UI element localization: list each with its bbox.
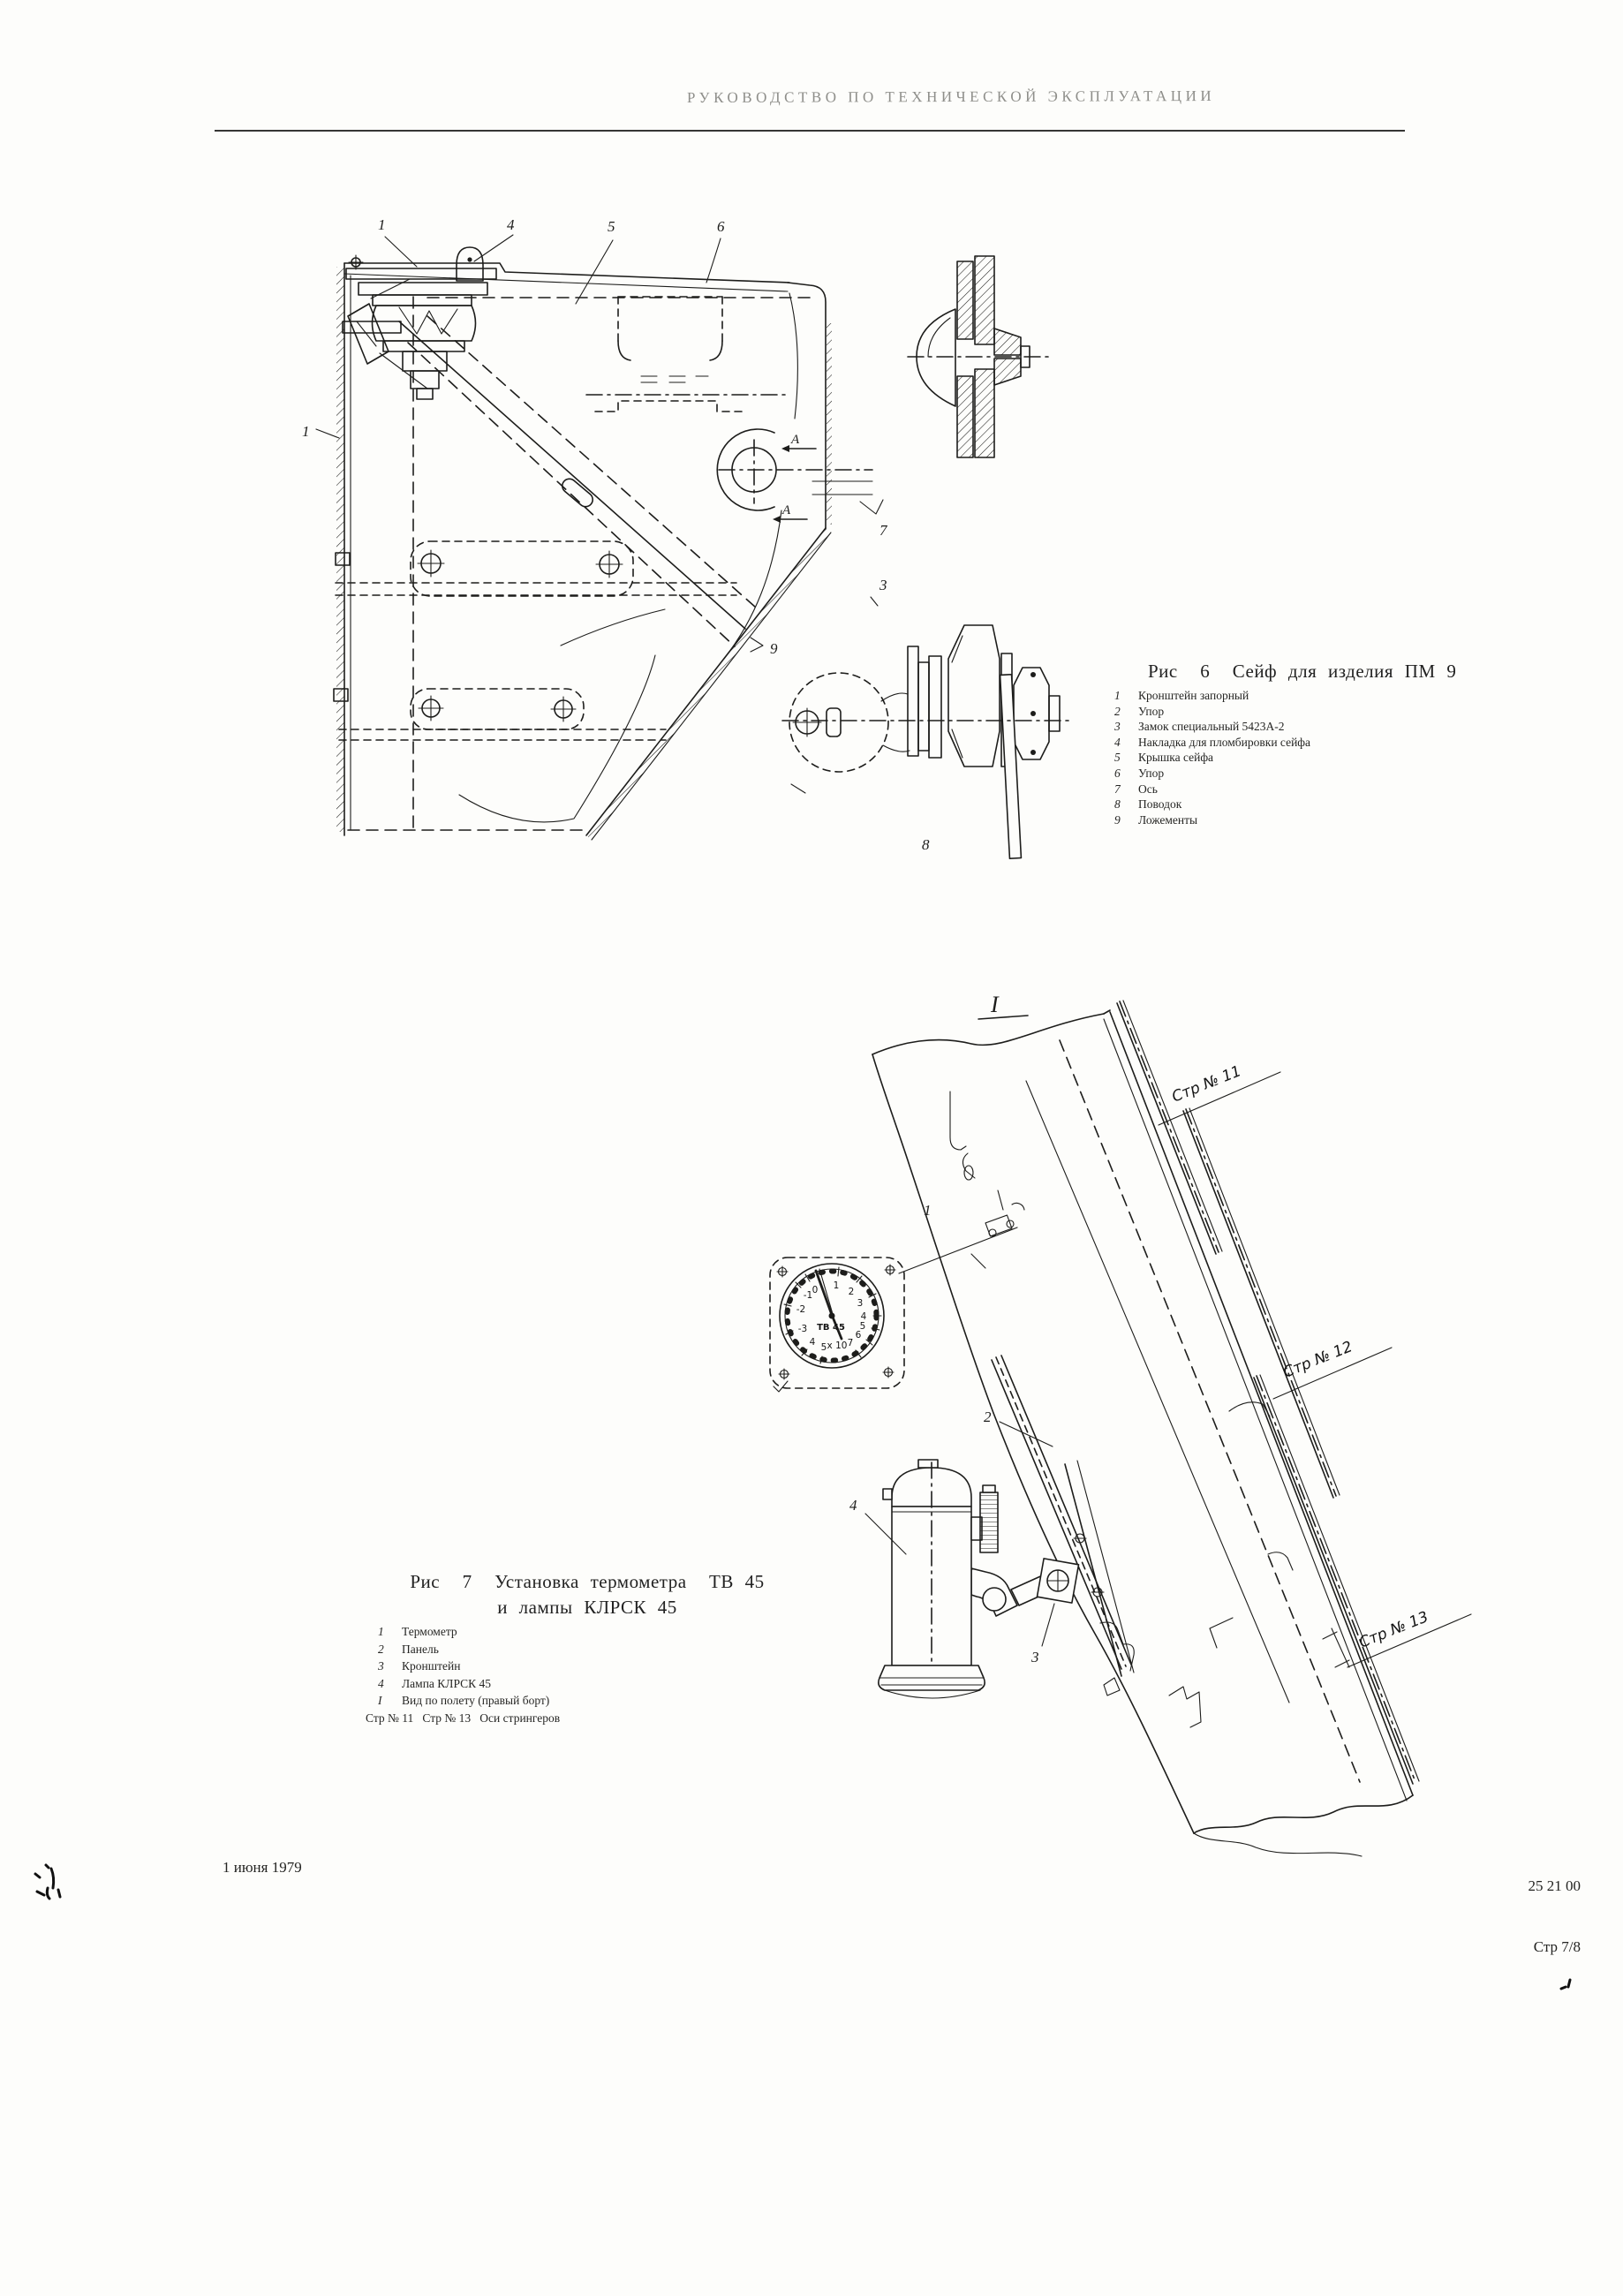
dial-number: 2 — [849, 1287, 855, 1297]
stringer-11 — [1117, 1001, 1222, 1254]
footer-date: 1 июня 1979 — [223, 1859, 302, 1877]
dial-number: -3 — [798, 1324, 807, 1334]
list-item: 5Крышка сейфа — [1114, 750, 1310, 766]
list-item: 1Кронштейн запорный — [1114, 688, 1310, 704]
lock-assembly — [343, 247, 496, 399]
page-header-stamp: РУКОВОДСТВО ПО ТЕХНИЧЕСКОЙ ЭКСПЛУАТАЦИИ — [687, 87, 1215, 107]
list-item: 3Замок специальный 5423А-2 — [1114, 719, 1310, 735]
dial-number: 7 — [848, 1338, 854, 1348]
list-item: 3Кронштейн — [378, 1658, 560, 1675]
thermometer-mount — [950, 1091, 1024, 1268]
section-letter-A: А — [790, 433, 800, 447]
callout-4: 4 — [507, 216, 515, 233]
header-rule — [215, 130, 1405, 132]
callout-1b: 1 — [302, 423, 310, 440]
ink-scribble — [25, 1854, 87, 1916]
dial-number: -2 — [796, 1304, 805, 1315]
list-item: 2Упор — [1114, 704, 1310, 720]
seal-plate — [457, 247, 483, 281]
fig6-parts-list: 1Кронштейн запорный 2Упор 3Замок специал… — [1114, 688, 1310, 827]
gauge-multiplier: x 10 — [827, 1341, 848, 1351]
panel-right-edge — [788, 283, 826, 528]
list-item: 4Накладка для пломбировки сейфа — [1114, 735, 1310, 751]
dial-number: 6 — [856, 1330, 862, 1341]
fig7-title-line2: и лампы КЛРСК 45 — [380, 1597, 795, 1619]
skin-top-edge — [872, 1014, 1104, 1054]
footer-page-number: Стр 7/8 — [1439, 1937, 1581, 1957]
stringer-12 — [1183, 1108, 1340, 1498]
list-item: 7Ось — [1114, 782, 1310, 797]
skin-bottom-edge — [1194, 1795, 1413, 1833]
footer-right: 25 21 00 Стр 7/8 — [1439, 1835, 1581, 1998]
callout-7: 7 — [879, 522, 888, 539]
fig7-lamp-assembly: 4 3 — [830, 1455, 1183, 1720]
manual-page: РУКОВОДСТВО ПО ТЕХНИЧЕСКОЙ ЭКСПЛУАТАЦИИ — [0, 0, 1623, 2296]
callout-1: 1 — [924, 1202, 932, 1219]
stringer-13 — [1254, 1375, 1419, 1784]
callout-4: 4 — [849, 1497, 857, 1514]
callout-3: 3 — [1030, 1649, 1039, 1665]
fig7-thermometer-gauge: 0 1 2 3 4 5 6 7 -1 -2 -3 4 5 ТВ 45 x 10 — [761, 1238, 955, 1415]
dial-number: 3 — [857, 1298, 864, 1309]
key-slot — [827, 708, 841, 736]
fig6-lock-detail: 8 — [775, 608, 1076, 872]
stringer-note: Стр № 11 Стр № 13 Оси стрингеров — [366, 1710, 560, 1727]
fig7-parts-list: 1Термометр 2Панель 3Кронштейн 4Лампа КЛР… — [378, 1623, 560, 1726]
callout-1: 1 — [378, 216, 386, 233]
fig6-title: Рис 6 Сейф для изделия ПМ 9 — [1148, 661, 1456, 683]
section-letter-A2: А — [781, 503, 791, 517]
detail-label-I: I — [990, 992, 1000, 1017]
adjust-knob — [980, 1492, 998, 1552]
list-item: 1Термометр — [378, 1623, 560, 1641]
ink-speck — [1558, 1975, 1579, 1996]
fig6-fastener-section — [901, 245, 1060, 466]
view-note: IВид по полету (правый борт) — [378, 1692, 560, 1710]
dial-number: -1 — [804, 1290, 812, 1301]
dial-number: 5 — [821, 1342, 827, 1353]
callout-2: 2 — [984, 1409, 992, 1425]
hex-nut — [948, 625, 1000, 767]
callout-5: 5 — [608, 218, 615, 235]
footer-doc-number: 25 21 00 — [1439, 1876, 1581, 1896]
list-item: 6Упор — [1114, 766, 1310, 782]
lozhement-strips — [334, 541, 736, 740]
fig7-fuselage-drawing: I Стр № 11 Стр № 12 Стр № 13 1 2 — [795, 996, 1475, 1879]
gauge-label: ТВ 45 — [817, 1323, 845, 1333]
dial-number: 4 — [810, 1337, 816, 1348]
left-edge-hatch — [336, 267, 344, 832]
dial-number: 1 — [834, 1280, 840, 1291]
stringer-13-label: Стр № 13 — [1356, 1608, 1431, 1652]
list-item: 9Ложементы — [1114, 812, 1310, 828]
stringer-11-label: Стр № 11 — [1169, 1062, 1243, 1106]
list-item: 4Лампа КЛРСК 45 — [378, 1675, 560, 1693]
fig7-title-line1: Рис 7 Установка термометра ТВ 45 — [380, 1571, 795, 1593]
callout-6: 6 — [717, 218, 725, 235]
dome-head — [917, 309, 955, 406]
callout-8: 8 — [922, 836, 930, 853]
list-item: 8Поводок — [1114, 797, 1310, 812]
list-item: 2Панель — [378, 1641, 560, 1658]
stringer-12-label: Стр № 12 — [1280, 1338, 1355, 1382]
callout-3: 3 — [879, 577, 887, 593]
dial-number: 0 — [812, 1285, 819, 1295]
